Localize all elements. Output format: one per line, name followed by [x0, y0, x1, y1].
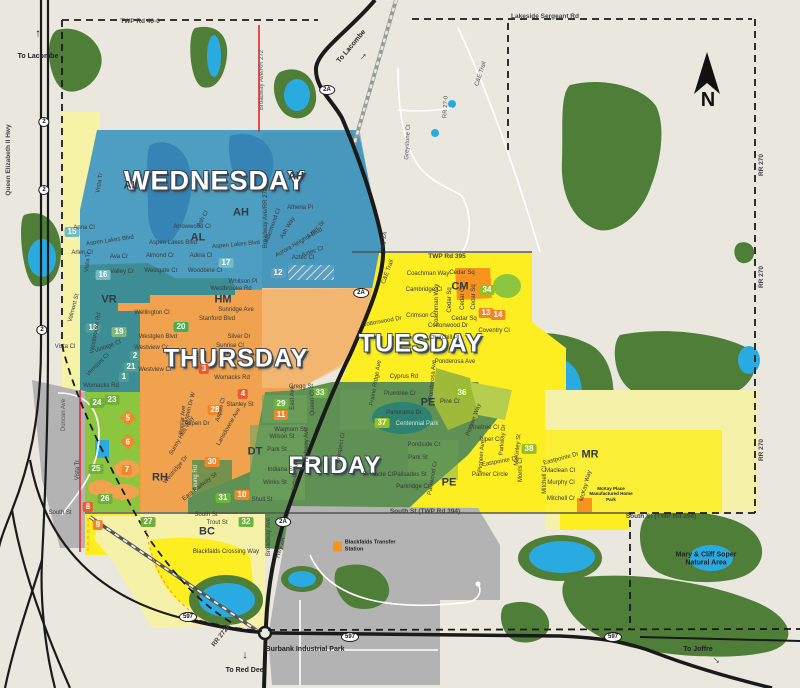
area-label: DT	[248, 447, 263, 458]
street-label: Eastpointe Dr	[543, 451, 580, 466]
street-label: Womacks Rd	[83, 383, 119, 389]
zone-number-badge: 2	[130, 351, 140, 361]
road-label: RR 270	[759, 266, 766, 288]
area-label: AH	[288, 172, 304, 183]
area-label: AH	[233, 208, 249, 219]
street-label: Greystone Ct	[404, 124, 412, 160]
street-label: Cyprus Rd	[390, 374, 418, 380]
area-label: VR	[101, 295, 116, 306]
zone-number-badge: 26	[98, 494, 113, 504]
street-label: Coachman Way	[407, 271, 449, 277]
construction-marker-icon: 5	[120, 410, 136, 426]
zone-number-badge: 20	[174, 322, 189, 332]
street-label: Crimson Cl	[406, 313, 436, 319]
street-label: C&E Trail	[381, 259, 395, 285]
zone-number-badge: 4	[238, 389, 248, 399]
street-label: Wellington Cl	[134, 310, 169, 316]
street-label: Parkway Dr	[499, 424, 508, 455]
area-label: AL	[124, 181, 139, 192]
highway-shield: 597	[179, 612, 197, 622]
construction-marker-icon: 6	[120, 434, 136, 450]
street-label: Aspen Lakes Blvd	[149, 240, 197, 246]
direction-arrow-icon: ↑	[242, 650, 248, 661]
zone-number-badge: 37	[375, 418, 390, 428]
area-label: PE	[442, 478, 457, 489]
street-label: Cedar Sq	[449, 270, 474, 276]
street-label: Park St	[408, 455, 428, 461]
zone-number-badge: 30	[205, 457, 220, 467]
street-label: Murphy Cl	[547, 480, 574, 486]
road-label: Lakeside Sergeant Rd	[511, 14, 579, 21]
street-label: C&E Trail	[474, 61, 488, 87]
place-label: To Red Deer	[226, 667, 267, 675]
street-label: Mitchell Cl	[542, 466, 548, 494]
street-label: Pinetree Cl	[469, 425, 499, 431]
street-label: Panorama Dr	[386, 410, 422, 416]
zone-number-badge: 27	[141, 517, 156, 527]
construction-marker-number: 6	[126, 437, 130, 446]
highway-shield: 2A	[275, 517, 291, 527]
map-labels-layer: WEDNESDAYTHURSDAYTUESDAYFRIDAYAHAHALALVR…	[0, 0, 800, 688]
place-label-text: To Joffre	[683, 646, 712, 653]
direction-arrow-icon: ↑	[357, 51, 368, 63]
street-label: Centennial Park	[396, 421, 439, 427]
street-label: Morris Cl	[518, 458, 524, 482]
street-label: Valley Cr	[110, 269, 134, 275]
street-label: Parkwood Cr	[427, 460, 439, 495]
place-label-text: McKay Place Manufactured Home Park	[589, 486, 632, 502]
highway-shield: 2A	[319, 85, 335, 95]
construction-marker-number: 5	[126, 413, 130, 422]
street-label: Cottonwood Dr	[362, 316, 402, 329]
street-label: Anna Cl	[73, 225, 94, 231]
street-label: Broadway Ave/RR 272	[263, 188, 269, 248]
street-label: Winks St	[263, 480, 287, 486]
place-label-text: Blackfalds Transfer Station	[345, 539, 407, 552]
street-label: Hwy 2A	[275, 537, 286, 559]
street-label: Vista Tr	[75, 460, 81, 480]
place-label-text: To Red Deer	[226, 667, 267, 674]
street-label: Westglen Blvd	[139, 334, 177, 340]
zone-number-badge: 8	[83, 502, 93, 512]
zone-number-badge: 34	[480, 285, 495, 295]
street-label: Vintage Cl	[94, 339, 122, 354]
street-label: RR 27-0	[442, 96, 449, 119]
zone-number-badge: 19	[112, 327, 127, 337]
zone-number-badge: 32	[239, 517, 254, 527]
street-label: Cottonwood Dr	[428, 323, 468, 329]
place-label-text: To Lacombe	[18, 53, 59, 60]
street-label: Woodbine Cl	[188, 268, 222, 274]
zone-number-badge: 10	[235, 490, 250, 500]
street-label: Whitson Pl	[229, 279, 258, 285]
street-label: Athena Pl	[287, 205, 313, 211]
street-label: Mitchell Cr	[547, 496, 575, 502]
road-label: TWP Rd 40-0	[120, 19, 160, 26]
street-label: Aspen Cl	[215, 397, 227, 422]
street-label: Sunrise Cl	[216, 343, 244, 349]
zone-number-badge: 21	[124, 362, 139, 372]
zone-number-badge: 38	[522, 444, 537, 454]
street-label: South St	[48, 510, 71, 516]
street-label: Highway Ave	[304, 428, 310, 463]
street-label: Westview Cr	[134, 345, 168, 351]
blackfalds-collection-zone-map: N WEDNESDAYTHURSDAYTUESDAYFRIDAYAHAHALAL…	[0, 0, 800, 688]
road-label: RR 272A	[211, 623, 233, 648]
highway-shield: 2	[36, 325, 47, 335]
street-label: Pine Cr	[440, 399, 460, 405]
zone-number-badge: 36	[455, 388, 470, 398]
area-label: HM	[214, 295, 231, 306]
street-label: Eastpointe Dr	[482, 456, 519, 468]
road-label: TWP Rd 395	[428, 254, 465, 261]
zone-number-badge: 1	[119, 372, 129, 382]
street-label: Coventry Cl	[478, 328, 509, 334]
place-label: Blackfalds Transfer Station	[333, 539, 407, 552]
street-label: Palmer Circle	[472, 472, 508, 478]
street-label: Palisades St	[393, 472, 426, 478]
highway-shield: 2A	[353, 288, 369, 298]
street-label: Queen Cl	[310, 390, 316, 415]
street-label: Stanford Blvd	[199, 316, 235, 322]
street-label: Maclean Cl	[545, 468, 575, 474]
street-label: Broadway Ave/RR 272	[259, 50, 265, 110]
road-label: RR 270	[759, 439, 766, 461]
zone-number-badge: 9	[93, 520, 103, 530]
zone-number-badge: 12	[271, 268, 286, 278]
zone-number-badge: 11	[274, 410, 288, 420]
street-label: Aspen Lakes Blvd	[212, 240, 260, 250]
transfer-station-icon	[333, 541, 342, 551]
road-label: Queen Elizabeth II Hwy	[6, 124, 13, 195]
street-label: Westgate Cr	[144, 268, 177, 274]
street-label: Duncan Ave	[61, 399, 67, 431]
street-label: Almond Cr	[146, 253, 174, 259]
street-label: Shull St	[252, 497, 273, 503]
street-label: Valmont St	[67, 293, 80, 322]
street-label: Cedar Sq	[471, 284, 477, 309]
street-label: Vista Cl	[55, 344, 76, 350]
street-label: Ash Way	[279, 216, 296, 240]
direction-arrow-icon: ↑	[710, 654, 722, 666]
street-label: Silver Dr	[227, 334, 250, 340]
street-label: Cedar Sq	[447, 287, 453, 312]
street-label: Pioneer Way	[465, 403, 482, 437]
street-label: Waghorn St	[274, 427, 305, 433]
street-label: Aztec St	[306, 220, 326, 240]
street-label: Parkridge Cr	[396, 484, 430, 490]
street-label: Pinnacle Cl	[363, 472, 393, 478]
zone-number-badge: 24	[90, 398, 105, 408]
zone-number-badge: 7	[122, 465, 132, 475]
street-label: Blackfalds Crossing Way	[193, 549, 259, 555]
street-label: Cedar Cl	[460, 286, 466, 310]
street-label: East Railway St	[182, 472, 219, 503]
direction-arrow-icon: ↑	[35, 29, 41, 40]
zone-number-badge: 3	[199, 364, 209, 374]
street-label: Sunridge Ave	[218, 307, 254, 313]
street-label: East Ave	[290, 386, 296, 410]
highway-shield: 597	[604, 632, 622, 642]
street-label: Aspen Lakes Blvd	[86, 235, 134, 248]
street-label: Park St	[267, 447, 287, 453]
street-label: Indiana St	[267, 467, 294, 473]
zone-number-badge: 14	[491, 310, 506, 320]
day-zone-label: THURSDAY	[164, 347, 309, 372]
street-label: Wilson St	[269, 434, 294, 440]
place-label: McKay Place Manufactured Home Park	[585, 486, 637, 502]
street-label: Westbrooke Rd	[210, 286, 251, 292]
street-label: Churchill Pl	[429, 335, 459, 341]
area-label: MR	[581, 450, 598, 461]
street-label: Vermont Cl	[85, 352, 110, 377]
place-label: Mary & Cliff Soper Natural Area	[666, 552, 746, 569]
street-label: Prairie Ridge Ave	[369, 360, 383, 407]
zone-number-badge: 17	[219, 258, 234, 268]
street-label: Ponderosa Ave	[435, 359, 476, 365]
highway-shield: 597	[341, 632, 359, 642]
street-label: Westridge Dr	[162, 455, 189, 486]
place-label: Burbank Industrial Park	[266, 646, 345, 654]
zone-number-badge: 25	[89, 464, 104, 474]
street-label: Stanley St	[226, 402, 253, 408]
road-label: South St (TWP Rd 394)	[626, 514, 696, 521]
street-label: Plumtree Cr	[384, 391, 416, 397]
street-label: Westview Cr	[138, 367, 172, 373]
street-label: Hwy 2A	[379, 231, 388, 252]
street-label: Arrowwood Cl	[173, 224, 210, 230]
street-label: South St	[194, 512, 217, 518]
street-label: Pondside Cr	[407, 442, 440, 448]
area-label: BC	[199, 527, 215, 538]
place-label: To Lacombe	[18, 53, 59, 61]
street-label: Adina Cl	[190, 253, 213, 259]
road-label: RR 270	[759, 154, 766, 176]
street-label: Ava Cr	[110, 254, 128, 260]
day-zone-label: TUESDAY	[359, 332, 483, 357]
day-zone-label: WEDNESDAY	[124, 168, 306, 195]
place-label-text: Mary & Cliff Soper Natural Area	[676, 552, 737, 567]
street-label: Broadway Ave	[266, 518, 272, 556]
zone-number-badge: 31	[216, 493, 231, 503]
street-label: Womacks Rd	[214, 375, 250, 381]
zone-number-badge: 16	[96, 270, 111, 280]
place-label-text: Burbank Industrial Park	[266, 646, 345, 653]
street-label: Trout St	[206, 520, 227, 526]
zone-number-badge: 29	[274, 399, 289, 409]
street-label: Cedar Sq	[451, 316, 476, 322]
street-label: Ponderosa Ave	[428, 360, 438, 401]
street-label: Vista Tr	[84, 252, 92, 273]
zone-number-badge: 23	[105, 395, 120, 405]
road-label: South St (TWP Rd 394)	[390, 509, 460, 516]
highway-shield: 2	[38, 117, 49, 127]
street-label: Coachman Way	[434, 284, 440, 326]
highway-shield: 2	[38, 185, 49, 195]
place-label: To Joffre	[683, 646, 712, 654]
street-label: Vista Tr	[95, 173, 104, 194]
